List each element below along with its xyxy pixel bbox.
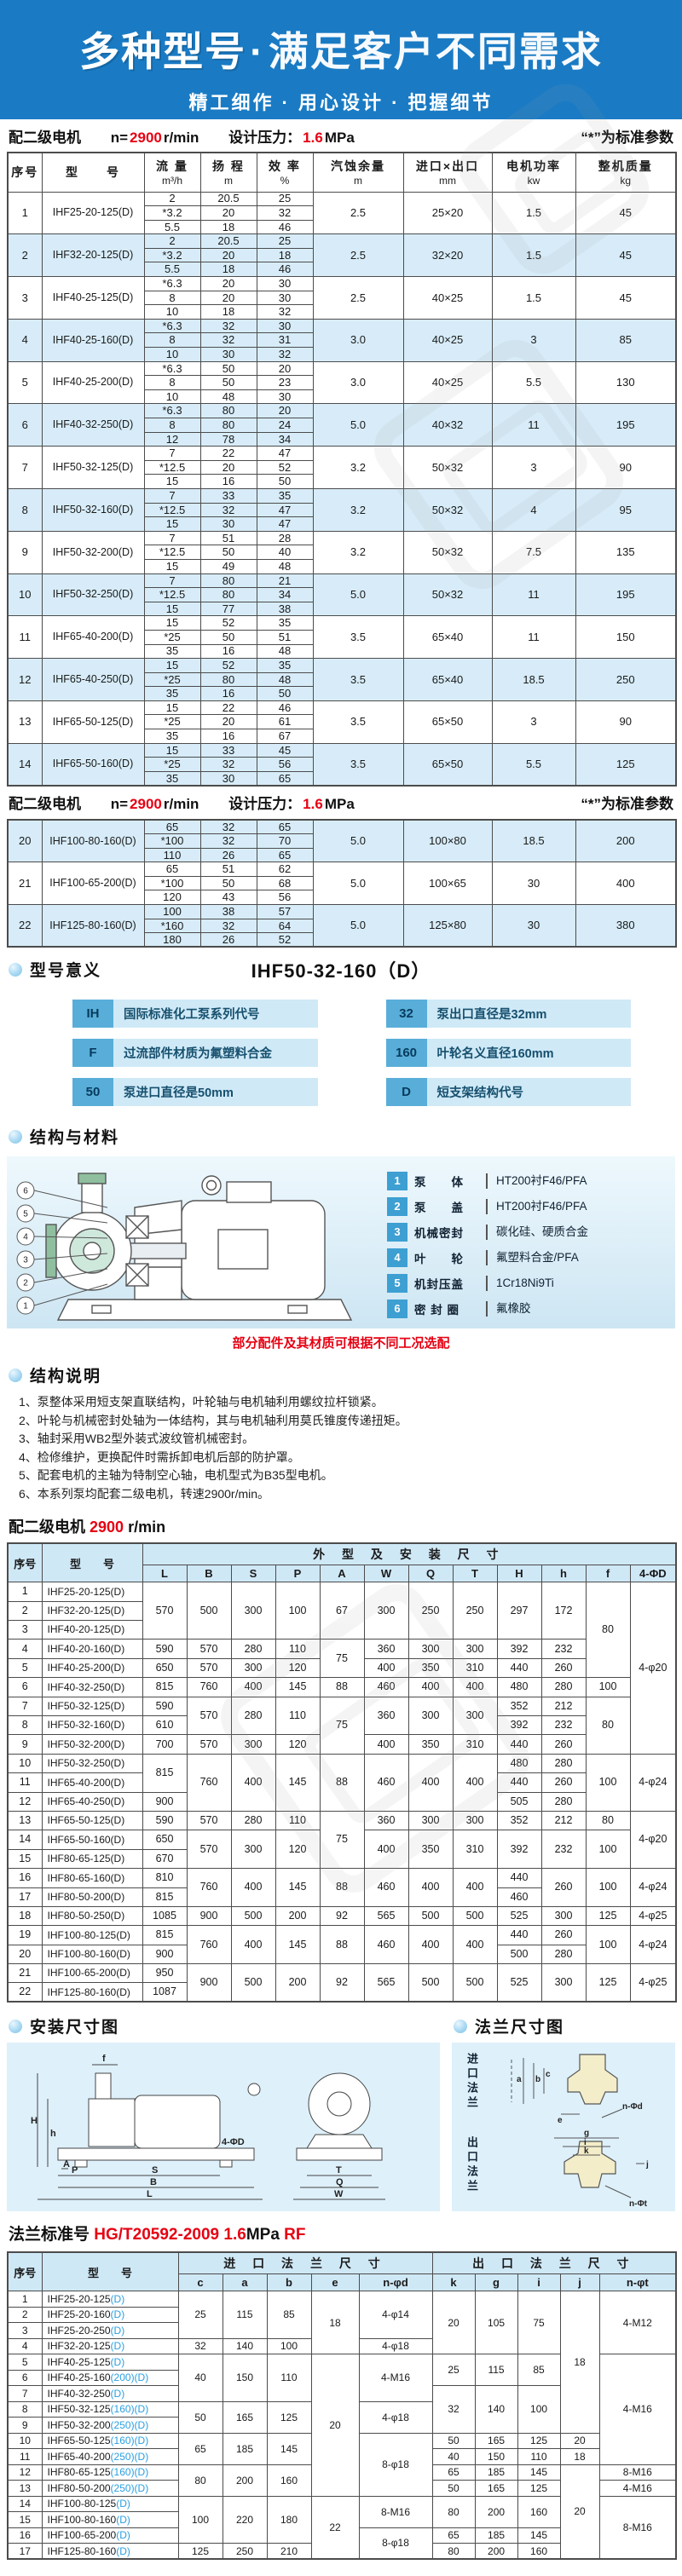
notes-list: 1、泵整体采用短支架直联结构，叶轮轴与电机轴利用螺纹拉杆锁紧。2、叶轮与机械密封… — [0, 1392, 682, 1507]
col-header: g — [475, 2274, 517, 2291]
cell: 50 — [200, 376, 257, 390]
material-number: 4 — [387, 1248, 407, 1267]
cell: 400 — [408, 1926, 453, 1964]
cell: 7 — [144, 488, 200, 503]
cell: 115 — [223, 2291, 267, 2339]
cell: 392 — [497, 1830, 541, 1869]
cell: 16 — [200, 729, 257, 744]
cell: 350 — [408, 1658, 453, 1677]
cell: 815 — [142, 1926, 187, 1945]
perf-row: 20IHF100-80-160(D)6532655.0100×8018.5200 — [8, 820, 676, 834]
cell: IHF25-20-160(D) — [42, 2307, 178, 2323]
cell: 4-φ20 — [630, 1811, 676, 1868]
cell: 7 — [144, 573, 200, 588]
svg-text:Q: Q — [336, 2177, 344, 2187]
std-param-note: “*”为标准参数 — [581, 792, 673, 813]
cell: IHF40-25-200(D) — [42, 1658, 142, 1677]
cell: 52 — [200, 616, 257, 631]
cell: 67 — [320, 1582, 364, 1640]
cell: IHF80-65-125(D) — [42, 1849, 142, 1868]
cell: 75 — [320, 1697, 364, 1754]
cell: 20 — [200, 248, 257, 262]
cell: 30 — [200, 771, 257, 786]
cell: 1.5 — [492, 192, 575, 234]
cell: IHF80-50-250(D) — [42, 1906, 142, 1925]
cell: *6.3 — [144, 361, 200, 376]
cell: 21 — [257, 573, 313, 588]
cell: *25 — [144, 758, 200, 772]
performance-table-2: 20IHF100-80-160(D)6532655.0100×8018.5200… — [7, 819, 677, 948]
cell: 440 — [497, 1735, 541, 1754]
model-code: 160 — [386, 1039, 427, 1067]
table-row: 6IHF40-32-250(D)815760400145884604004004… — [8, 1678, 676, 1697]
cell: 212 — [541, 1811, 586, 1830]
cell: 64 — [257, 919, 313, 933]
cell: 20 — [560, 2464, 599, 2559]
cell: 360 — [364, 1697, 408, 1735]
flange-dimension-diagram: 进口法兰 出口法兰 a b c e — [452, 2043, 675, 2211]
cell: 400 — [364, 1735, 408, 1754]
cell: 32 — [257, 305, 313, 320]
cell: 125 — [517, 2433, 560, 2449]
cell: 40×25 — [403, 361, 492, 404]
cell: 570 — [187, 1697, 231, 1735]
cell: IHF65-40-200(D) — [42, 1773, 142, 1792]
section-bullet-icon — [454, 2020, 467, 2033]
perf-row: 14IHF65-50-160(D)1533453.565×505.5125 — [8, 743, 676, 758]
cell: 300 — [541, 1964, 586, 2003]
performance-table-1: 序号型 号流 量m³/h扬 程m效 率%汽蚀余量m进口×出口mm电机功率kw整机… — [7, 152, 677, 787]
cell: 125 — [586, 1906, 630, 1925]
cell: 4-φ14 — [359, 2291, 432, 2339]
cell: *6.3 — [144, 319, 200, 333]
cell: 3.2 — [313, 531, 403, 573]
cell: 500 — [453, 1906, 497, 1925]
speed-label: n= — [111, 796, 128, 812]
cell: *12.5 — [144, 588, 200, 602]
cell: 145 — [517, 2464, 560, 2481]
cell: 75 — [517, 2291, 560, 2354]
cell: 16 — [8, 1869, 42, 1887]
cell: 23 — [257, 376, 313, 390]
cell: 20 — [432, 2291, 475, 2354]
cell: 12 — [8, 1792, 42, 1811]
cell: 50 — [200, 876, 257, 890]
svg-text:g: g — [584, 2129, 589, 2138]
cell: 17 — [8, 2544, 42, 2560]
col-header: H — [497, 1565, 541, 1582]
cell: 40 — [432, 2449, 475, 2465]
model-code-item: IH国际标准化工泵系列代号 — [72, 1000, 318, 1028]
cell: 35 — [257, 616, 313, 631]
cell: 5 — [8, 1658, 42, 1677]
cell: IHF25-20-250(D) — [42, 2323, 178, 2339]
cell: 110 — [275, 1697, 320, 1735]
perf-row: 9IHF50-32-200(D)751283.250×327.5135 — [8, 531, 676, 545]
cell: 4-M16 — [359, 2354, 432, 2402]
cell: 90 — [575, 700, 676, 743]
cell: 350 — [408, 1735, 453, 1754]
cell: 50 — [200, 361, 257, 376]
note-line: 4、检修维护，更换配件时需拆卸电机后部的防护罩。 — [19, 1449, 673, 1467]
cell: 22 — [311, 2496, 359, 2559]
cell: 120 — [275, 1830, 320, 1869]
cell: 65 — [144, 862, 200, 877]
cell: 150 — [475, 2449, 517, 2465]
cell: 180 — [144, 933, 200, 948]
pressure-unit: MPa — [325, 796, 355, 812]
cell: 3.5 — [313, 616, 403, 659]
cell: 45 — [257, 743, 313, 758]
cell: 40×25 — [403, 277, 492, 320]
model-meaning-section: 型号意义 IHF50-32-160（D） IH国际标准化工泵系列代号32泵出口直… — [0, 948, 682, 1115]
materials-note: 部分配件及其材质可根据不同工况选配 — [0, 1328, 682, 1353]
col-header: b — [267, 2274, 311, 2291]
cell: 88 — [320, 1678, 364, 1697]
cell: 120 — [275, 1735, 320, 1754]
cell: 172 — [541, 1582, 586, 1640]
cell: 50 — [257, 687, 313, 701]
cell: 7 — [144, 447, 200, 461]
cell: 2 — [8, 234, 42, 277]
cell: 1087 — [142, 1983, 187, 2002]
cell: 40×25 — [403, 319, 492, 361]
speed-value: 2900 — [90, 1519, 124, 1536]
svg-text:h: h — [50, 2129, 56, 2139]
cell: 21 — [8, 862, 42, 905]
cell: 360 — [364, 1811, 408, 1830]
cell: 22 — [8, 1983, 42, 2002]
cell: 352 — [497, 1811, 541, 1830]
cell: 2 — [8, 1601, 42, 1620]
material-name: 机械密封 — [407, 1224, 486, 1241]
cell: 18 — [257, 248, 313, 262]
page-subtitle: 精工细作 · 用心设计 · 把握细节 — [0, 88, 682, 115]
cell: 16 — [8, 2527, 42, 2544]
cell: IHF50-32-200(250)(D) — [42, 2418, 178, 2434]
cell: 5.5 — [492, 361, 575, 404]
cell: 260 — [541, 1926, 586, 1945]
cell: 6 — [8, 404, 42, 447]
model-code-item: D短支架结构代号 — [386, 1078, 632, 1106]
cell: 310 — [453, 1658, 497, 1677]
table-row: 4IHF40-20-160(D)590570280110753603003003… — [8, 1640, 676, 1658]
material-row: 6密 封 圈氟橡胶 — [387, 1296, 668, 1321]
cell: 145 — [275, 1869, 320, 1907]
model-code-desc: 泵进口直径是50mm — [113, 1078, 318, 1106]
cell: 460 — [364, 1926, 408, 1964]
svg-text:B: B — [150, 2177, 157, 2187]
section-bullet-icon — [9, 1369, 22, 1382]
col-header: n-φt — [599, 2274, 676, 2291]
cell: 10 — [8, 1754, 42, 1772]
cell: 570 — [142, 1582, 187, 1640]
cell: 260 — [541, 1658, 586, 1677]
cell: 5.5 — [492, 743, 575, 786]
cell: 33 — [200, 488, 257, 503]
cell: IHF125-80-160(D) — [42, 1983, 142, 2002]
cell: IHF50-32-200(D) — [42, 1735, 142, 1754]
cell: 48 — [257, 644, 313, 659]
cell: 51 — [257, 630, 313, 644]
cell: 160 — [267, 2464, 311, 2496]
cell: 100 — [586, 1830, 630, 1869]
cell: 18 — [200, 220, 257, 234]
cell: 9 — [8, 531, 42, 573]
cell: 30 — [257, 291, 313, 305]
section-title: 结构与材料 — [30, 1125, 119, 1148]
cell: 18 — [200, 262, 257, 277]
cell: 815 — [142, 1678, 187, 1697]
cell: 45 — [575, 192, 676, 234]
cell: 8-M16 — [599, 2496, 676, 2559]
perf-row: 13IHF65-50-125(D)1522463.565×50390 — [8, 700, 676, 715]
cell: 20 — [200, 291, 257, 305]
flange-standard-number: HG/T20592-2009 — [94, 2226, 219, 2244]
cell: IHF40-20-125(D) — [42, 1621, 142, 1640]
cell: 32 — [178, 2338, 223, 2354]
cell: 35 — [144, 644, 200, 659]
cell: 15 — [144, 517, 200, 532]
svg-text:5: 5 — [23, 1210, 28, 1219]
cell: 300 — [231, 1735, 275, 1754]
cell: 7 — [8, 1697, 42, 1715]
cell: 310 — [453, 1830, 497, 1869]
cell: 50 — [432, 2481, 475, 2497]
material-number: 6 — [387, 1300, 407, 1318]
cell: IHF80-65-125(160)(D) — [42, 2464, 178, 2481]
cell: 32 — [200, 919, 257, 933]
col-header: 型 号 — [42, 1543, 142, 1582]
svg-text:P: P — [72, 2165, 78, 2175]
cell: *6.3 — [144, 404, 200, 418]
material-value: HT200衬F46/PFA — [486, 1199, 587, 1214]
table-row: 1IHF25-20-125(D)570500300100673002502502… — [8, 1582, 676, 1601]
cell: *3.2 — [144, 248, 200, 262]
section-title: 法兰尺寸图 — [475, 2014, 564, 2037]
cell: 46 — [257, 262, 313, 277]
cell: 95 — [575, 488, 676, 531]
section-bullet-icon — [9, 2020, 22, 2033]
cell: 1085 — [142, 1906, 187, 1925]
cell: *3.2 — [144, 206, 200, 221]
col-header: 进口×出口mm — [403, 153, 492, 192]
cell: 30 — [492, 905, 575, 948]
cell: 31 — [257, 333, 313, 348]
svg-text:1: 1 — [23, 1302, 28, 1311]
cell: 65 — [257, 848, 313, 862]
speed-label: n= — [111, 130, 128, 146]
perf-row: 22IHF125-80-160(D)10038575.0125×8030380 — [8, 905, 676, 919]
cell: 110 — [275, 1640, 320, 1658]
cell: 28 — [257, 531, 313, 545]
cell: 80 — [586, 1811, 630, 1830]
cell: 5.0 — [313, 573, 403, 616]
cell: 360 — [364, 1640, 408, 1658]
cell: 145 — [275, 1926, 320, 1964]
cell: 8-M16 — [359, 2496, 432, 2527]
cell: 480 — [497, 1678, 541, 1697]
col-header: S — [231, 1565, 275, 1582]
svg-text:c: c — [546, 2070, 551, 2079]
material-name: 泵 盖 — [407, 1198, 486, 1215]
cell: 78 — [200, 432, 257, 447]
cell: 100 — [586, 1869, 630, 1907]
cell: 100×65 — [403, 862, 492, 905]
table-row: 10IHF50-32-250(D)81576040014588460400400… — [8, 1754, 676, 1772]
col-header: 序号 — [8, 153, 42, 192]
cell: 26 — [200, 933, 257, 948]
col-header: 扬 程m — [200, 153, 257, 192]
cell: 900 — [187, 1906, 231, 1925]
cell: 8 — [144, 333, 200, 348]
section-bullet-icon — [9, 1130, 22, 1144]
cell: 4 — [8, 1640, 42, 1658]
perf-row: 2IHF32-20-125(D)220.5252.532×201.545 — [8, 234, 676, 249]
model-code-item: 32泵出口直径是32mm — [386, 1000, 632, 1028]
cell: 110 — [144, 848, 200, 862]
cell: IHF65-50-160(D) — [42, 743, 144, 786]
cell: 65×40 — [403, 616, 492, 659]
cell: 195 — [575, 573, 676, 616]
cell: IHF100-65-200(D) — [42, 1964, 142, 1983]
model-code: D — [386, 1078, 427, 1106]
cell: 57 — [257, 905, 313, 919]
cell: 2.5 — [313, 192, 403, 234]
cell: 92 — [320, 1964, 364, 2003]
cell: 300 — [231, 1830, 275, 1869]
cell: 900 — [142, 1792, 187, 1811]
cell: 8 — [144, 418, 200, 433]
cell: *160 — [144, 919, 200, 933]
cell: 32 — [200, 820, 257, 834]
material-number: 2 — [387, 1197, 407, 1216]
material-value: 碳化硅、硬质合金 — [486, 1225, 588, 1240]
cell: 12 — [8, 2464, 42, 2481]
cell: 900 — [142, 1945, 187, 1963]
cell: 260 — [541, 1773, 586, 1792]
cell: 500 — [453, 1964, 497, 2003]
cell: 20.5 — [200, 192, 257, 206]
cell: 460 — [364, 1678, 408, 1697]
cell: IHF65-40-200(250)(D) — [42, 2449, 178, 2465]
cell: IHF125-80-160(D) — [42, 2544, 178, 2560]
cell: 18 — [8, 1906, 42, 1925]
cell: 15 — [144, 559, 200, 573]
cell: 3.5 — [313, 743, 403, 786]
col-header: 流 量m³/h — [144, 153, 200, 192]
cell: 47 — [257, 503, 313, 517]
cell: 3.5 — [313, 700, 403, 743]
cell: 100 — [586, 1926, 630, 1964]
cell: 15 — [144, 602, 200, 616]
cell: 17 — [8, 1887, 42, 1906]
cell: IHF65-50-160(D) — [42, 1830, 142, 1849]
cell: 525 — [497, 1906, 541, 1925]
cell: 2.5 — [313, 277, 403, 320]
cell: 48 — [257, 672, 313, 687]
cell: 5.5 — [144, 262, 200, 277]
cell: 11 — [492, 616, 575, 659]
cell: IHF25-20-125(D) — [42, 2291, 178, 2308]
cell: 165 — [223, 2401, 267, 2433]
cell: 250 — [223, 2544, 267, 2560]
cell: 50×32 — [403, 531, 492, 573]
cell: 3 — [8, 2323, 42, 2339]
title-separator: · — [250, 29, 265, 74]
cell: 300 — [364, 1582, 408, 1640]
cell: 12 — [144, 432, 200, 447]
cell: 18 — [560, 2449, 599, 2465]
svg-text:6: 6 — [23, 1187, 28, 1196]
title-bold: 多种型号 — [79, 29, 246, 74]
cell: 20 — [560, 2433, 599, 2449]
col-header: k — [432, 2274, 475, 2291]
cell: 18 — [311, 2291, 359, 2354]
cell: 280 — [231, 1640, 275, 1658]
motor-label: 配二级电机 — [9, 1519, 90, 1536]
cell: 280 — [231, 1697, 275, 1735]
cell: 38 — [257, 602, 313, 616]
cell: 232 — [541, 1830, 586, 1869]
cell: 22 — [8, 905, 42, 948]
cell: 11 — [492, 404, 575, 447]
cell: 52 — [200, 659, 257, 673]
cell: 3.2 — [313, 488, 403, 531]
section-title: 安装尺寸图 — [30, 2014, 119, 2037]
cell: 900 — [187, 1964, 231, 2003]
cell: 25 — [257, 234, 313, 249]
cell: 15 — [144, 743, 200, 758]
cell: 12 — [8, 659, 42, 701]
speed-unit: r/min — [164, 796, 199, 812]
motor-label: 配二级电机 — [9, 796, 81, 812]
cell: 10 — [8, 2433, 42, 2449]
cell: 150 — [575, 616, 676, 659]
cell: 232 — [541, 1716, 586, 1735]
cell: IHF65-50-125(D) — [42, 700, 144, 743]
cell: 67 — [257, 729, 313, 744]
cell: 400 — [231, 1754, 275, 1811]
cell: 185 — [223, 2433, 267, 2464]
motor-label: 配二级电机 — [9, 130, 81, 146]
cell: 11 — [8, 1773, 42, 1792]
cell: 260 — [541, 1869, 586, 1907]
cell: 4-M16 — [599, 2354, 676, 2465]
cell: IHF40-25-160(D) — [42, 319, 144, 361]
table-row: 18IHF80-50-250(D)10859005002009256550050… — [8, 1906, 676, 1925]
cell: IHF40-25-200(D) — [42, 361, 144, 404]
cell: *25 — [144, 672, 200, 687]
cell: 24 — [257, 418, 313, 433]
cell: 22 — [200, 700, 257, 715]
cell: 297 — [497, 1582, 541, 1640]
table-row: 16IHF80-65-160(D)81076040014588460400400… — [8, 1869, 676, 1887]
cell: 9 — [8, 2418, 42, 2434]
svg-text:3: 3 — [23, 1256, 28, 1265]
cell: 47 — [257, 447, 313, 461]
cell: 100 — [144, 905, 200, 919]
cell: 50×32 — [403, 447, 492, 489]
cell: 56 — [257, 890, 313, 905]
cell: IHF50-32-160(D) — [42, 488, 144, 531]
perf-row: 10IHF50-32-250(D)780215.050×3211195 — [8, 573, 676, 588]
cell: 45 — [575, 277, 676, 320]
cell: 65 — [144, 820, 200, 834]
col-header: 外 型 及 安 装 尺 寸 — [142, 1543, 676, 1565]
cell: 10 — [144, 305, 200, 320]
cell: 352 — [497, 1697, 541, 1715]
